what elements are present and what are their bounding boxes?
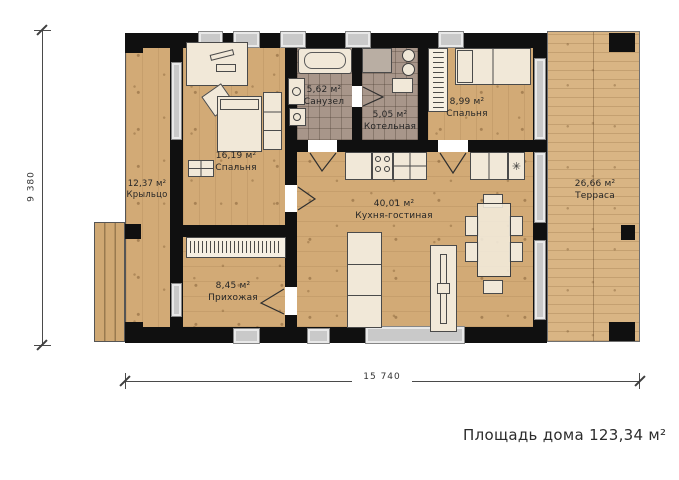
room-label-boiler: 5,05 м² Котельная: [354, 110, 426, 133]
wall: [468, 140, 547, 152]
window: [534, 152, 546, 223]
shelf-unit: [263, 92, 282, 150]
room-name: Спальня: [432, 109, 502, 121]
boiler-unit: [392, 78, 413, 93]
pillow: [457, 50, 473, 83]
terrace-pillar: [609, 322, 635, 341]
wall: [352, 48, 362, 86]
stove-burner: [375, 156, 381, 162]
window: [307, 328, 330, 344]
wall: [285, 212, 297, 287]
total-area-label: Площадь дома 123,34 м²: [463, 426, 638, 444]
window: [345, 31, 371, 48]
room-area: 5,05 м²: [354, 110, 426, 122]
room-label-kitchen: 40,01 м² Кухня-гостиная: [350, 199, 438, 222]
room-name: Кухня-гостиная: [350, 211, 438, 223]
room-label-bedroom2: 8,99 м² Спальня: [432, 97, 502, 120]
room-label-porch: 12,37 м² Крыльцо: [119, 179, 175, 201]
room-name: Санузел: [293, 97, 355, 109]
dining-chair: [483, 280, 503, 294]
room-label-bathroom: 5,62 м² Санузел: [293, 85, 355, 108]
boiler-tank: [402, 49, 415, 62]
porch-pillar: [125, 33, 143, 53]
room-label-hallway: 8,45 м² Прихожая: [196, 281, 270, 304]
floor-plan: ✳ 12,37 м² Крыльцо 16,19 м² Спальня 5,62…: [0, 0, 679, 480]
room-name: Прихожая: [196, 293, 270, 305]
room-area: 8,99 м²: [432, 97, 502, 109]
room-name: Крыльцо: [119, 190, 175, 201]
dining-table: [477, 203, 511, 277]
tv-stand-knob: [437, 283, 450, 294]
room-area: 5,62 м²: [293, 85, 355, 97]
stove-burner: [375, 166, 381, 172]
wardrobe: [186, 237, 286, 258]
entrance-door: [171, 283, 182, 317]
room-area: 12,37 м²: [119, 179, 175, 190]
wall: [418, 48, 428, 152]
porch-pillar: [125, 322, 143, 343]
dimension-label-horizontal: 15 740: [352, 372, 412, 382]
window: [233, 328, 260, 344]
door-opening: [438, 140, 468, 152]
room-label-terrace: 26,66 м² Терраса: [556, 179, 634, 202]
door-opening: [285, 287, 297, 315]
room-name: Котельная: [354, 122, 426, 134]
room-area: 40,01 м²: [350, 199, 438, 211]
wall: [285, 140, 308, 152]
window: [171, 62, 182, 140]
dimension-label-vertical: 9 380: [27, 165, 40, 209]
washer: [362, 48, 392, 73]
door-opening: [308, 140, 337, 152]
door-opening: [285, 185, 297, 212]
dining-chair: [509, 242, 523, 262]
dimension-line-vertical: [42, 30, 43, 345]
kitchen-counter: [345, 152, 372, 180]
kitchen-counter: [393, 152, 427, 180]
window: [534, 58, 546, 140]
wall: [170, 225, 297, 237]
boiler-tank: [402, 63, 415, 76]
room-label-bedroom1: 16,19 м² Спальня: [203, 151, 269, 174]
sofa: [347, 232, 382, 328]
kitchen-counter: [470, 152, 508, 180]
room-name: Спальня: [203, 163, 269, 175]
fridge-snowflake-icon: ✳: [512, 160, 521, 173]
window: [534, 240, 546, 320]
desk-item: [216, 64, 236, 72]
pillow: [220, 99, 259, 110]
porch-pillar: [125, 224, 141, 239]
window: [280, 31, 306, 48]
room-area: 26,66 м²: [556, 179, 634, 191]
window: [438, 31, 464, 48]
fridge: ✳: [508, 152, 525, 180]
room-area: 16,19 м²: [203, 151, 269, 163]
porch-steps: [94, 222, 125, 342]
dining-chair: [509, 216, 523, 236]
stove-burner: [384, 166, 390, 172]
wall: [337, 140, 438, 152]
stove-burner: [384, 156, 390, 162]
bathtub-basin: [304, 52, 346, 69]
wall: [125, 327, 545, 343]
room-name: Терраса: [556, 191, 634, 203]
wall: [285, 315, 297, 343]
terrace-pillar: [609, 33, 635, 52]
room-area: 8,45 м²: [196, 281, 270, 293]
terrace-pillar: [621, 225, 635, 240]
toilet-bowl: [293, 113, 301, 121]
